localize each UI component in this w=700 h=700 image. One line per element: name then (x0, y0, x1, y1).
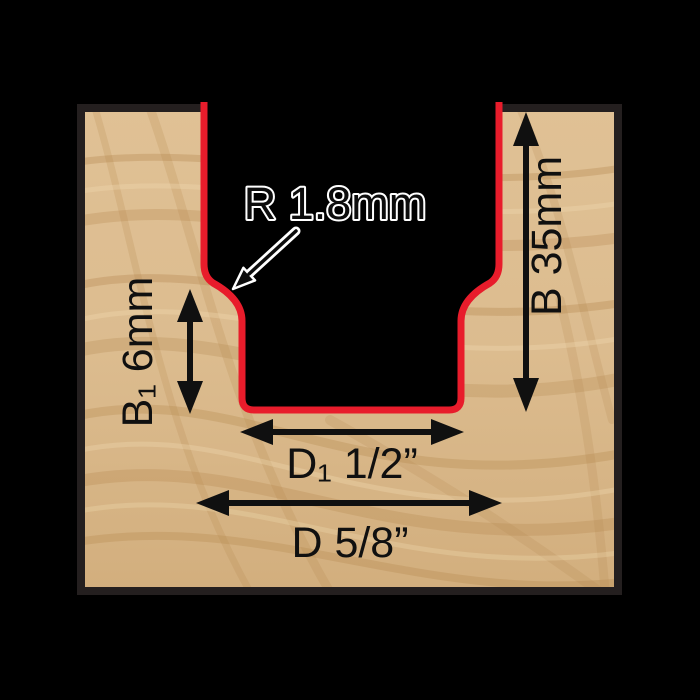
groove-cavity (204, 99, 499, 410)
radius-callout-label: R 1.8mm (244, 178, 427, 229)
dim-label-d1: D₁ 1/2” (286, 440, 418, 488)
dim-label-d: D 5/8” (291, 519, 408, 567)
dim-label-b1: B₁ 6mm (114, 277, 162, 428)
diagram-canvas: B 35mm B₁ 6mm D₁ 1/2” D 5/8” R 1.8mm (0, 0, 700, 700)
groove-profile-diagram: B 35mm B₁ 6mm D₁ 1/2” D 5/8” R 1.8mm (0, 0, 700, 700)
dim-label-b: B 35mm (523, 156, 571, 316)
